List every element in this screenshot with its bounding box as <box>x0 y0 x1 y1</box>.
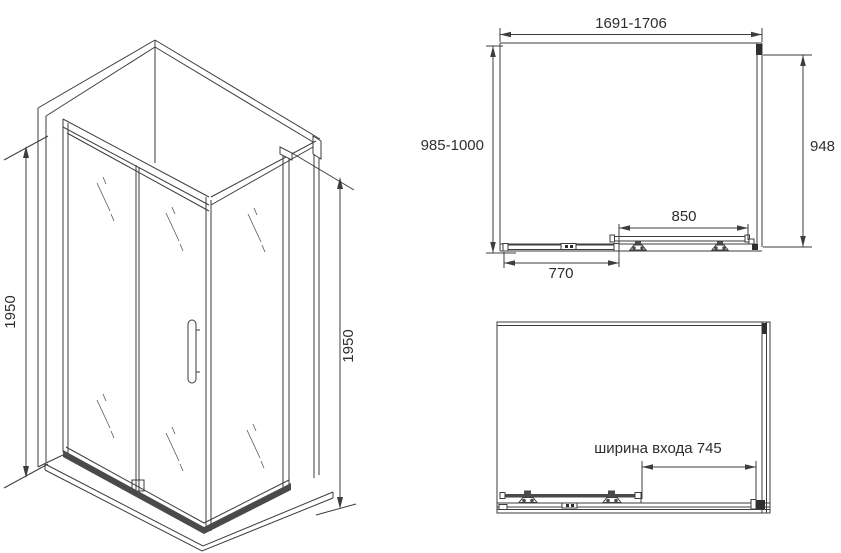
dim-height-right: 1950 <box>292 153 357 515</box>
dim-height-left-label: 1950 <box>2 295 19 328</box>
door-handle <box>188 320 200 383</box>
dim-width-range-label: 1691-1706 <box>595 15 667 32</box>
back-left-top-rail <box>38 40 155 116</box>
dim-fixed-width-label: 770 <box>548 265 573 282</box>
roller-plan-right <box>712 241 728 250</box>
front-left-post <box>63 119 68 456</box>
front-right-post <box>206 197 211 531</box>
side-panel-post <box>280 147 292 489</box>
dim-height-right-label: 1950 <box>340 329 357 362</box>
dim-height-left: 1950 <box>2 136 48 488</box>
right-back-profile <box>314 154 319 478</box>
sliding-door-plan <box>610 235 758 250</box>
bottom-track-front <box>497 500 770 510</box>
roller-plan-left <box>630 241 646 250</box>
side-panel-plan <box>756 43 762 247</box>
left-wall-panel <box>38 108 46 467</box>
dim-door-width-label: 850 <box>671 208 696 225</box>
top-view-walls <box>500 43 762 251</box>
dim-depth-range-label: 985-1000 <box>421 137 484 154</box>
center-mullion <box>132 165 144 492</box>
dim-depth-range: 985-1000 <box>421 46 516 253</box>
dim-door-width: 850 <box>619 208 748 267</box>
glass-shine-marks <box>97 177 265 471</box>
bottom-rail <box>63 447 291 534</box>
back-right-top-rail <box>155 40 321 159</box>
dim-side-depth-label: 948 <box>810 138 835 155</box>
dim-width-range: 1691-1706 <box>500 15 762 42</box>
entrance-width-label: ширина входа 745 <box>594 440 722 457</box>
sliding-door-front <box>500 491 641 504</box>
drawing-svg: 1950 1950 <box>0 0 841 553</box>
right-wall-profile-front <box>762 322 767 513</box>
fixed-panel-plan <box>503 244 619 252</box>
dim-fixed-width: 770 <box>504 252 619 282</box>
dim-side-depth: 948 <box>763 55 835 247</box>
top-view: 1691-1706 985-1000 948 850 770 <box>421 15 835 282</box>
right-face-top-edge <box>211 141 316 205</box>
perspective-view: 1950 1950 <box>2 40 357 551</box>
front-view: ширина входа 745 <box>497 322 770 513</box>
technical-drawing-canvas: 1950 1950 <box>0 0 841 553</box>
front-view-frame <box>497 322 770 513</box>
